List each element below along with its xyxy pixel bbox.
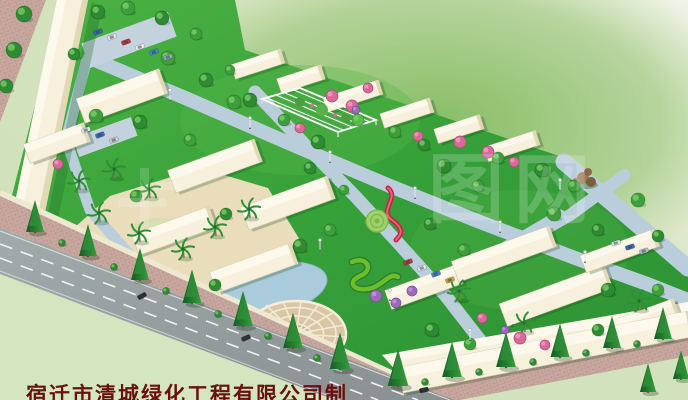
purple-flower-shrub — [370, 290, 382, 302]
landscape-plan-rendering: 图网 宿迁市清城绿化工程有限公司制 — [0, 0, 688, 400]
pink-flower-shrub — [295, 123, 305, 133]
watermark-text: 图网 — [428, 152, 600, 228]
circular-lawn-center — [375, 219, 380, 224]
pink-flower-shrub — [53, 159, 63, 169]
watermark-partial-glyph — [118, 198, 166, 207]
purple-flower-shrub — [352, 106, 360, 114]
company-credit-text: 宿迁市清城绿化工程有限公司制 — [26, 379, 348, 400]
purple-flower-shrub — [407, 286, 417, 296]
pink-flower-shrub — [514, 332, 526, 344]
purple-flower-shrub — [501, 326, 509, 334]
pink-flower-shrub — [326, 90, 338, 102]
pink-flower-shrub — [413, 131, 423, 141]
watermark-partial-glyph — [150, 182, 182, 190]
pink-flower-shrub — [363, 83, 373, 93]
pink-flower-shrub — [477, 313, 487, 323]
purple-flower-shrub — [391, 298, 401, 308]
pink-flower-shrub — [540, 340, 550, 350]
